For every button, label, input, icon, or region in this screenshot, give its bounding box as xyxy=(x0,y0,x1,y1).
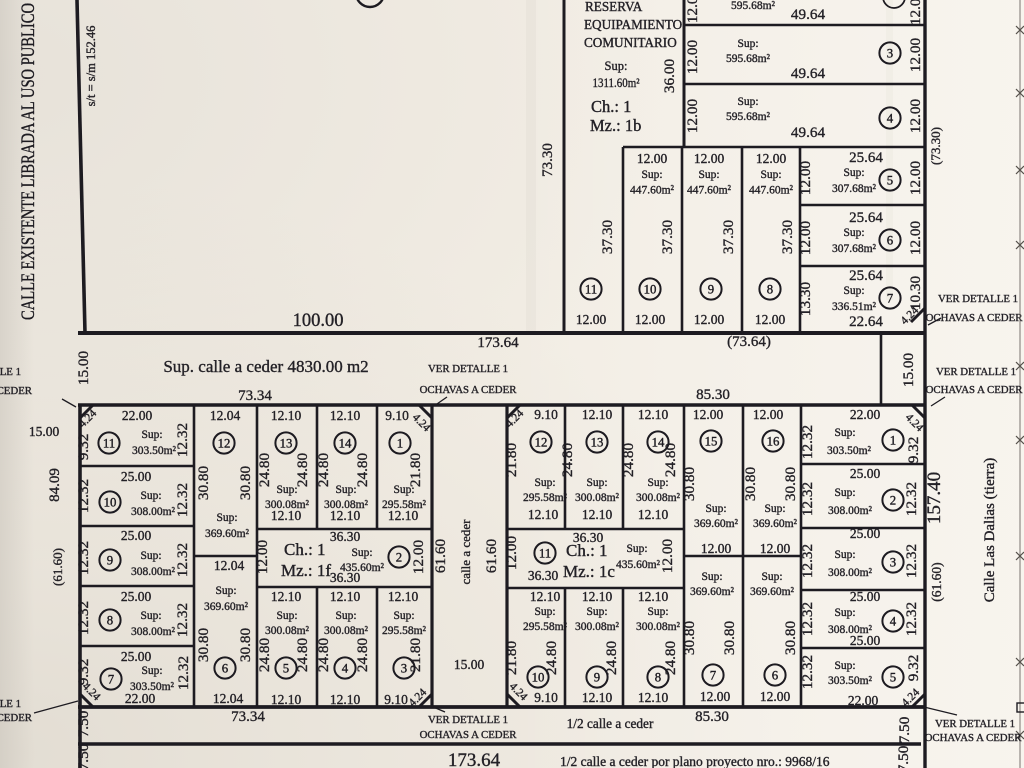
svg-text:12.00: 12.00 xyxy=(659,539,676,574)
svg-text:s/t = s/m 152.46: s/t = s/m 152.46 xyxy=(84,26,98,107)
svg-text:7: 7 xyxy=(108,672,115,686)
svg-text:295.58m²: 295.58m² xyxy=(523,621,568,633)
svg-text:30.80: 30.80 xyxy=(742,467,759,502)
svg-text:25.64: 25.64 xyxy=(849,210,883,226)
svg-text:Sup:: Sup: xyxy=(140,610,161,622)
svg-text:30.80: 30.80 xyxy=(237,466,254,501)
svg-text:25.00: 25.00 xyxy=(850,633,881,648)
svg-text:3: 3 xyxy=(890,555,896,569)
svg-text:OCHAVAS A CEDER: OCHAVAS A CEDER xyxy=(925,732,1023,744)
svg-text:2: 2 xyxy=(890,493,896,507)
svg-text:VER DETALLE 1: VER DETALLE 1 xyxy=(0,366,21,378)
svg-text:22.00: 22.00 xyxy=(122,408,153,423)
svg-text:12.10: 12.10 xyxy=(582,507,613,522)
svg-text:9: 9 xyxy=(708,282,714,296)
svg-text:Sup:: Sup: xyxy=(834,607,855,619)
svg-text:Sup:: Sup: xyxy=(843,285,864,297)
svg-text:8: 8 xyxy=(107,613,113,627)
svg-text:73.34: 73.34 xyxy=(238,388,272,404)
svg-text:12.32: 12.32 xyxy=(799,544,816,578)
svg-text:12.32: 12.32 xyxy=(174,423,191,457)
svg-text:2: 2 xyxy=(396,550,402,564)
svg-text:4: 4 xyxy=(890,614,897,628)
svg-text:12.00: 12.00 xyxy=(755,312,786,327)
svg-text:Sup:: Sup: xyxy=(737,96,758,108)
svg-text:Sup:: Sup: xyxy=(141,429,162,441)
svg-text:Sup:: Sup: xyxy=(215,585,236,597)
svg-text:calle a ceder: calle a ceder xyxy=(458,519,473,585)
svg-text:15.00: 15.00 xyxy=(75,351,92,386)
svg-text:307.68m²: 307.68m² xyxy=(832,243,877,255)
svg-text:12.32: 12.32 xyxy=(75,479,92,513)
svg-text:295.58m²: 295.58m² xyxy=(382,625,427,637)
svg-text:12.10: 12.10 xyxy=(388,589,419,604)
svg-text:25.64: 25.64 xyxy=(849,150,883,166)
svg-text:1: 1 xyxy=(890,433,896,447)
svg-text:303.50m²: 303.50m² xyxy=(132,445,177,457)
svg-text:CALLE EXISTENTE LIBRADA AL USO: CALLE EXISTENTE LIBRADA AL USO PUBLICO xyxy=(18,3,39,320)
svg-text:12.00: 12.00 xyxy=(797,161,814,196)
svg-text:Sup:: Sup: xyxy=(647,606,668,618)
svg-text:12.00: 12.00 xyxy=(760,541,791,556)
svg-text:22.00: 22.00 xyxy=(850,407,881,422)
svg-text:9.10: 9.10 xyxy=(534,407,558,422)
svg-text:Calle Las Dalias (tierra): Calle Las Dalias (tierra) xyxy=(982,458,998,603)
svg-text:12.10: 12.10 xyxy=(330,692,361,707)
svg-text:11: 11 xyxy=(585,282,597,296)
svg-text:595.68m²: 595.68m² xyxy=(726,111,771,123)
svg-text:10: 10 xyxy=(532,670,545,684)
svg-text:12.10: 12.10 xyxy=(582,589,613,604)
svg-text:5: 5 xyxy=(890,670,896,684)
svg-text:308.00m²: 308.00m² xyxy=(131,566,176,578)
svg-text:12.00: 12.00 xyxy=(701,541,732,556)
svg-text:12.00: 12.00 xyxy=(684,40,701,75)
svg-text:Sup:: Sup: xyxy=(834,549,855,561)
svg-text:24.80: 24.80 xyxy=(256,453,273,488)
svg-text:12.00: 12.00 xyxy=(694,151,725,166)
svg-text:Mz.: 1c: Mz.: 1c xyxy=(563,562,615,581)
svg-text:24.80: 24.80 xyxy=(315,638,332,673)
svg-text:Ch.: 1: Ch.: 1 xyxy=(284,540,326,559)
svg-text:7: 7 xyxy=(887,291,894,305)
svg-text:12.00: 12.00 xyxy=(756,151,787,166)
svg-text:12.10: 12.10 xyxy=(330,408,361,423)
svg-text:VER DETALLE 1: VER DETALLE 1 xyxy=(428,363,508,375)
svg-text:12.32: 12.32 xyxy=(903,602,920,636)
svg-text:30.80: 30.80 xyxy=(681,467,698,502)
svg-text:303.50m²: 303.50m² xyxy=(828,675,873,687)
svg-text:VER DETALLE 1: VER DETALLE 1 xyxy=(938,293,1018,305)
svg-text:15: 15 xyxy=(705,434,718,448)
svg-text:3: 3 xyxy=(887,46,893,60)
svg-text:Sup:: Sup: xyxy=(276,610,297,622)
svg-text:7.50: 7.50 xyxy=(75,743,92,768)
svg-text:Sup. calle a ceder 4830.00 m2: Sup. calle a ceder 4830.00 m2 xyxy=(163,357,368,376)
svg-text:12.32: 12.32 xyxy=(75,601,92,635)
svg-text:6: 6 xyxy=(222,661,229,675)
svg-text:307.68m²: 307.68m² xyxy=(832,183,877,195)
svg-text:9: 9 xyxy=(107,553,113,567)
svg-text:300.08m²: 300.08m² xyxy=(636,492,681,504)
svg-text:(73.64): (73.64) xyxy=(727,334,771,350)
svg-text:85.30: 85.30 xyxy=(695,709,729,725)
svg-text:12.00: 12.00 xyxy=(694,312,725,327)
svg-text:Sup:: Sup: xyxy=(351,547,372,559)
svg-text:308.00m²: 308.00m² xyxy=(828,567,873,579)
svg-text:9.32: 9.32 xyxy=(75,659,92,686)
svg-text:1/2 calle a ceder: 1/2 calle a ceder xyxy=(567,716,654,731)
svg-text:Sup:: Sup: xyxy=(647,477,668,489)
svg-text:300.08m²: 300.08m² xyxy=(575,621,620,633)
svg-text:447.60m²: 447.60m² xyxy=(630,183,674,197)
svg-text:(73.30): (73.30) xyxy=(928,127,943,165)
svg-text:84.09: 84.09 xyxy=(47,468,63,502)
svg-text:12.10: 12.10 xyxy=(638,690,669,705)
svg-text:VER DETALLE 1: VER DETALLE 1 xyxy=(936,366,1016,378)
svg-text:4: 4 xyxy=(887,111,894,125)
svg-text:308.00m²: 308.00m² xyxy=(131,506,176,518)
svg-text:Sup:: Sup: xyxy=(586,606,607,618)
svg-text:12.00: 12.00 xyxy=(637,151,668,166)
svg-text:12.32: 12.32 xyxy=(903,544,920,578)
svg-text:12.10: 12.10 xyxy=(638,589,669,604)
svg-text:369.60m²: 369.60m² xyxy=(204,601,249,613)
svg-text:12.10: 12.10 xyxy=(528,507,559,522)
svg-text:12.10: 12.10 xyxy=(330,589,361,604)
svg-text:10: 10 xyxy=(104,495,117,509)
svg-text:157.40: 157.40 xyxy=(924,472,945,524)
svg-text:Sup:: Sup: xyxy=(834,487,855,499)
svg-text:61.60: 61.60 xyxy=(432,539,449,574)
svg-text:VER DETALLE 1: VER DETALLE 1 xyxy=(0,698,21,710)
svg-text:30.80: 30.80 xyxy=(782,621,799,656)
svg-text:30.80: 30.80 xyxy=(237,628,254,663)
svg-text:49.64: 49.64 xyxy=(791,124,826,141)
svg-text:369.60m²: 369.60m² xyxy=(205,528,250,540)
svg-text:12.10: 12.10 xyxy=(638,507,669,522)
svg-text:22.00: 22.00 xyxy=(125,691,156,706)
svg-text:9.32: 9.32 xyxy=(75,434,92,461)
svg-text:Sup:: Sup: xyxy=(641,169,662,181)
svg-text:12.32: 12.32 xyxy=(174,543,191,577)
svg-text:36.30: 36.30 xyxy=(528,568,559,583)
svg-text:12.32: 12.32 xyxy=(903,482,920,516)
svg-text:25.00: 25.00 xyxy=(121,589,152,604)
svg-text:9.10: 9.10 xyxy=(534,690,558,705)
svg-text:447.60m²: 447.60m² xyxy=(749,183,793,197)
svg-text:6: 6 xyxy=(887,233,894,247)
svg-text:Sup:: Sup: xyxy=(605,59,628,73)
svg-text:OCHAVAS A CEDER: OCHAVAS A CEDER xyxy=(0,385,33,397)
svg-text:Sup:: Sup: xyxy=(705,503,726,515)
svg-text:Mz.: 1b: Mz.: 1b xyxy=(590,116,641,135)
svg-text:303.50m²: 303.50m² xyxy=(827,445,872,457)
svg-text:Sup:: Sup: xyxy=(393,610,414,622)
svg-text:30.80: 30.80 xyxy=(195,466,212,501)
svg-text:Sup:: Sup: xyxy=(335,484,356,496)
svg-text:21.80: 21.80 xyxy=(503,443,520,478)
svg-text:295.58m²: 295.58m² xyxy=(523,492,568,504)
svg-text:435.60m²: 435.60m² xyxy=(616,559,661,571)
svg-text:Sup:: Sup: xyxy=(737,38,758,50)
svg-text:12: 12 xyxy=(535,435,548,449)
svg-text:8: 8 xyxy=(767,282,773,296)
svg-text:336.51m²: 336.51m² xyxy=(832,301,877,313)
svg-text:25.00: 25.00 xyxy=(121,649,152,664)
svg-text:COMUNITARIO: COMUNITARIO xyxy=(584,35,677,50)
svg-text:OCHAVAS A CEDER: OCHAVAS A CEDER xyxy=(420,729,518,741)
svg-text:369.60m²: 369.60m² xyxy=(753,518,798,530)
svg-text:369.60m²: 369.60m² xyxy=(750,586,795,598)
svg-text:15.00: 15.00 xyxy=(454,657,485,672)
svg-text:85.30: 85.30 xyxy=(696,387,730,403)
svg-text:9.32: 9.32 xyxy=(905,655,922,682)
svg-text:100.00: 100.00 xyxy=(293,311,344,331)
svg-text:24.80: 24.80 xyxy=(620,443,637,478)
svg-text:12.10: 12.10 xyxy=(582,690,613,705)
svg-text:Sup:: Sup: xyxy=(141,665,162,677)
svg-text:Sup:: Sup: xyxy=(764,503,785,515)
svg-text:OCHAVAS A CEDER: OCHAVAS A CEDER xyxy=(0,712,33,724)
svg-text:21.80: 21.80 xyxy=(503,641,520,676)
svg-text:12: 12 xyxy=(218,436,231,450)
svg-text:12.00: 12.00 xyxy=(503,536,520,571)
svg-text:12.00: 12.00 xyxy=(254,540,271,575)
svg-text:Sup:: Sup: xyxy=(701,571,722,583)
svg-text:12.00: 12.00 xyxy=(907,38,924,73)
svg-text:12.10: 12.10 xyxy=(271,408,302,423)
svg-text:308.00m²: 308.00m² xyxy=(131,626,176,638)
svg-text:12.00: 12.00 xyxy=(576,312,607,327)
svg-text:11: 11 xyxy=(539,546,551,560)
svg-text:13: 13 xyxy=(591,435,604,449)
svg-text:12.32: 12.32 xyxy=(799,602,816,636)
svg-text:Sup:: Sup: xyxy=(698,169,719,181)
svg-text:30.80: 30.80 xyxy=(782,467,799,502)
svg-text:36.30: 36.30 xyxy=(330,570,361,585)
svg-text:Sup:: Sup: xyxy=(626,543,647,555)
svg-text:14: 14 xyxy=(339,436,352,450)
svg-text:1311.60m²: 1311.60m² xyxy=(593,76,640,90)
svg-text:49.64: 49.64 xyxy=(791,65,826,82)
svg-text:Ch.: 1: Ch.: 1 xyxy=(591,97,631,116)
svg-text:300.08m²: 300.08m² xyxy=(265,625,310,637)
svg-text:12.00: 12.00 xyxy=(907,221,924,256)
svg-text:12.00: 12.00 xyxy=(907,161,924,196)
svg-text:12.04: 12.04 xyxy=(210,408,241,423)
svg-text:7.50: 7.50 xyxy=(75,710,92,737)
svg-text:24.80: 24.80 xyxy=(662,443,679,478)
svg-text:308.00m²: 308.00m² xyxy=(828,505,873,517)
svg-text:RESERVA: RESERVA xyxy=(585,0,643,14)
svg-text:595.68m²: 595.68m² xyxy=(726,53,771,65)
svg-text:Sup:: Sup: xyxy=(843,227,864,239)
svg-text:10: 10 xyxy=(644,282,657,296)
svg-text:12.32: 12.32 xyxy=(799,425,816,459)
svg-text:12.00: 12.00 xyxy=(907,99,924,134)
svg-text:61.60: 61.60 xyxy=(483,539,500,574)
svg-text:36.30: 36.30 xyxy=(330,529,361,544)
svg-text:5: 5 xyxy=(887,173,893,187)
svg-text:37.30: 37.30 xyxy=(779,220,796,255)
svg-text:12.04: 12.04 xyxy=(214,558,245,573)
svg-text:12.10: 12.10 xyxy=(271,589,302,604)
svg-text:173.64: 173.64 xyxy=(477,335,519,351)
svg-text:37.30: 37.30 xyxy=(599,220,616,255)
svg-text:12.00: 12.00 xyxy=(760,689,791,704)
svg-text:Mz.: 1f: Mz.: 1f xyxy=(281,561,331,580)
svg-text:8: 8 xyxy=(655,670,661,684)
svg-text:37.30: 37.30 xyxy=(659,220,676,255)
svg-text:12.32: 12.32 xyxy=(174,483,191,517)
svg-text:369.60m²: 369.60m² xyxy=(694,518,739,530)
svg-text:12.00: 12.00 xyxy=(797,221,814,256)
svg-text:(61.60): (61.60) xyxy=(929,562,944,601)
svg-text:12.00: 12.00 xyxy=(684,99,701,134)
svg-text:Sup:: Sup: xyxy=(534,477,555,489)
svg-text:Sup:: Sup: xyxy=(216,512,237,524)
svg-text:25.00: 25.00 xyxy=(850,589,881,604)
svg-text:Sup:: Sup: xyxy=(140,490,161,502)
svg-text:30.80: 30.80 xyxy=(721,621,738,656)
svg-text:369.60m²: 369.60m² xyxy=(690,586,735,598)
svg-text:595.68m²: 595.68m² xyxy=(731,0,776,12)
svg-text:12.00: 12.00 xyxy=(635,312,666,327)
svg-text:24.80: 24.80 xyxy=(354,453,371,488)
svg-text:Sup:: Sup: xyxy=(843,167,864,179)
svg-text:447.60m²: 447.60m² xyxy=(687,183,731,197)
svg-text:Sup:: Sup: xyxy=(393,484,414,496)
svg-text:24.80: 24.80 xyxy=(294,453,311,488)
svg-text:7.50: 7.50 xyxy=(896,716,913,743)
svg-text:Sup:: Sup: xyxy=(834,427,855,439)
svg-text:Sup:: Sup: xyxy=(834,660,855,672)
svg-text:9.10: 9.10 xyxy=(385,408,409,423)
svg-text:Ch.: 1: Ch.: 1 xyxy=(566,541,608,560)
svg-text:Sup:: Sup: xyxy=(534,606,555,618)
svg-text:15.00: 15.00 xyxy=(900,353,917,388)
svg-text:12.10: 12.10 xyxy=(271,692,302,707)
svg-text:3: 3 xyxy=(401,661,407,675)
svg-text:OCHAVAS A CEDER: OCHAVAS A CEDER xyxy=(926,384,1024,396)
svg-text:12.00: 12.00 xyxy=(907,0,924,25)
svg-text:VER DETALLE 1: VER DETALLE 1 xyxy=(935,718,1015,730)
svg-text:4: 4 xyxy=(342,661,349,675)
svg-text:73.34: 73.34 xyxy=(231,709,265,725)
svg-text:12.10: 12.10 xyxy=(330,508,361,523)
svg-text:25.00: 25.00 xyxy=(121,528,152,543)
svg-text:25.64: 25.64 xyxy=(849,268,883,284)
svg-text:13: 13 xyxy=(280,436,293,450)
svg-text:22.64: 22.64 xyxy=(849,314,883,330)
svg-text:12.10: 12.10 xyxy=(388,508,419,523)
svg-text:36.00: 36.00 xyxy=(661,59,678,94)
svg-text:12.10: 12.10 xyxy=(638,407,669,422)
svg-text:VER DETALLE 1: VER DETALLE 1 xyxy=(428,714,508,726)
svg-text:16: 16 xyxy=(767,434,780,448)
svg-text:Sup:: Sup: xyxy=(586,477,607,489)
svg-text:Sup:: Sup: xyxy=(761,571,782,583)
svg-text:13.30: 13.30 xyxy=(797,282,814,317)
svg-text:5: 5 xyxy=(283,661,289,675)
svg-text:15.00: 15.00 xyxy=(29,424,60,439)
svg-text:25.00: 25.00 xyxy=(121,469,152,484)
svg-text:25.00: 25.00 xyxy=(850,466,881,481)
svg-text:10.30: 10.30 xyxy=(907,276,924,311)
svg-text:(61.60): (61.60) xyxy=(50,548,65,586)
svg-text:12.00: 12.00 xyxy=(753,407,784,422)
svg-text:9: 9 xyxy=(594,670,600,684)
svg-text:24.80: 24.80 xyxy=(315,453,332,488)
svg-text:12.00: 12.00 xyxy=(700,689,731,704)
svg-text:Sup:: Sup: xyxy=(335,610,356,622)
svg-text:300.08m²: 300.08m² xyxy=(324,625,369,637)
svg-text:EQUIPAMIENTO: EQUIPAMIENTO xyxy=(584,17,682,32)
svg-text:12.10: 12.10 xyxy=(271,508,302,523)
svg-text:Sup:: Sup: xyxy=(276,484,297,496)
svg-text:Sup:: Sup: xyxy=(760,169,781,181)
svg-text:12.04: 12.04 xyxy=(213,691,244,706)
svg-text:30.80: 30.80 xyxy=(195,628,212,663)
svg-text:37.30: 37.30 xyxy=(720,220,737,255)
svg-text:49.64: 49.64 xyxy=(791,6,826,23)
svg-text:12.10: 12.10 xyxy=(582,407,613,422)
svg-text:25.00: 25.00 xyxy=(850,526,881,541)
svg-text:7.50: 7.50 xyxy=(895,745,912,768)
svg-text:1: 1 xyxy=(397,436,403,450)
svg-text:300.08m²: 300.08m² xyxy=(636,621,681,633)
svg-text:12.32: 12.32 xyxy=(75,541,92,575)
svg-text:12.00: 12.00 xyxy=(410,540,427,575)
svg-text:30.80: 30.80 xyxy=(681,621,698,656)
svg-text:12.32: 12.32 xyxy=(799,482,816,516)
svg-text:21.80: 21.80 xyxy=(407,453,424,488)
svg-text:73.30: 73.30 xyxy=(540,143,556,177)
svg-text:9.32: 9.32 xyxy=(905,437,922,464)
svg-text:9.10: 9.10 xyxy=(384,692,408,707)
svg-text:24.80: 24.80 xyxy=(256,638,273,673)
svg-text:6: 6 xyxy=(772,668,779,682)
svg-text:300.08m²: 300.08m² xyxy=(575,492,620,504)
svg-text:12.10: 12.10 xyxy=(530,589,561,604)
svg-text:24.80: 24.80 xyxy=(559,443,576,478)
svg-text:7: 7 xyxy=(710,668,717,682)
svg-text:24.80: 24.80 xyxy=(354,638,371,673)
svg-text:11: 11 xyxy=(103,436,115,450)
svg-text:12.32: 12.32 xyxy=(174,603,191,637)
svg-text:OCHAVAS A CEDER: OCHAVAS A CEDER xyxy=(420,384,518,396)
svg-text:1/2 calle a ceder por plano pr: 1/2 calle a ceder por plano proyecto nro… xyxy=(560,754,830,768)
svg-text:12.32: 12.32 xyxy=(175,656,192,690)
svg-text:12.00: 12.00 xyxy=(684,0,701,23)
svg-text:173.64: 173.64 xyxy=(448,750,501,768)
svg-text:12.00: 12.00 xyxy=(693,407,724,422)
svg-text:12.32: 12.32 xyxy=(799,655,816,689)
svg-text:Sup:: Sup: xyxy=(140,550,161,562)
